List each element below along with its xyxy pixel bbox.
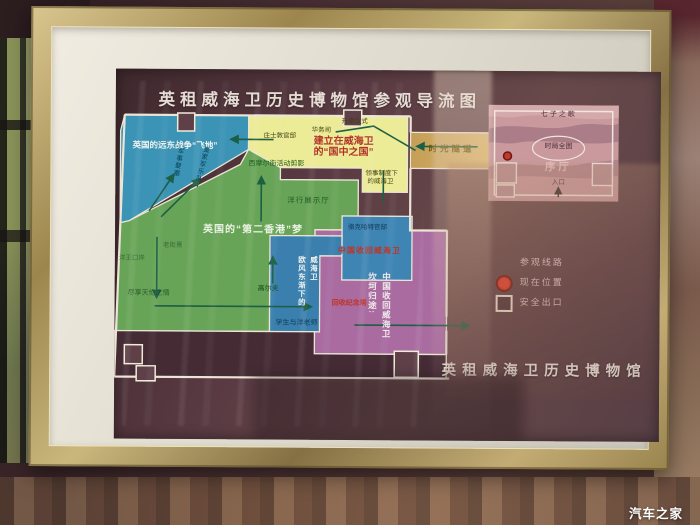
label-tower: 回收纪念塔 — [332, 300, 367, 308]
label-family-scene: 尽享天伦之情 — [128, 290, 170, 298]
hall-name-label: 序厅 — [533, 161, 583, 173]
watermark-text: 汽车之家 — [629, 503, 683, 522]
label-chinese-affairs: 华务司 — [312, 127, 332, 135]
label-golf: 高尔夫 — [258, 285, 279, 293]
safety-exit-icon — [496, 295, 513, 312]
zone-return-title-left: 坎坷归途: — [367, 272, 377, 314]
zone-euro-title-right: 威海卫 — [309, 256, 318, 282]
legend-route-label: 参观线路 — [520, 257, 564, 268]
photo-of-framed-museum-map: 英租威海卫历史博物馆参观导流图 — [0, 0, 700, 525]
floor-reflection-bottom — [0, 477, 700, 525]
label-port: 洋王口岸 — [119, 255, 145, 263]
label-johnston: 庄士敦官邸 — [264, 132, 297, 140]
label-students: 学生与洋老师 — [275, 320, 317, 328]
legend-current-label: 现在位置 — [520, 277, 564, 288]
current-position-icon — [496, 275, 513, 292]
zone-euro-title-left: 欧风东渐下的 — [297, 256, 306, 307]
legend-exit-label: 安全出口 — [520, 297, 564, 308]
label-recover-red: 中国收回威海卫 — [338, 246, 401, 256]
label-lockhart: 骆克哈特官邸 — [348, 224, 387, 232]
hall-map-label: 时局全图 — [536, 143, 582, 151]
corridor-label: 时光隧道 — [416, 144, 488, 154]
entrance-hall-panel — [488, 105, 619, 202]
zone-return-title-right: 中国收回威海卫 — [380, 272, 390, 339]
zone-state-title-2: 的“国中之国” — [313, 147, 373, 159]
label-firm-hall: 洋行展示厅 — [287, 197, 330, 206]
current-position-marker — [503, 152, 511, 160]
gold-picture-frame: 英租威海卫历史博物馆参观导流图 — [29, 6, 672, 470]
hall-entrance-label: 入口 — [539, 179, 577, 187]
zone-hk-title: 英国的“第二香港”梦 — [203, 224, 303, 236]
hall-song-label: 七子之歌 — [526, 111, 592, 119]
label-seymour: 西摩尔街活动剪影 — [248, 160, 304, 168]
label-street-scene: 老街景 — [163, 242, 183, 250]
label-consul-1: 领事制度下 — [365, 170, 398, 178]
label-consul-2: 的威海卫 — [367, 178, 393, 186]
white-mat-board: 英租威海卫历史博物馆参观导流图 — [49, 26, 652, 450]
visitor-flow-map-poster: 英租威海卫历史博物馆参观导流图 — [114, 69, 661, 442]
label-flag-ceremony: 升旗仪式 — [342, 118, 368, 126]
museum-name: 英租威海卫历史博物馆 — [430, 362, 658, 380]
